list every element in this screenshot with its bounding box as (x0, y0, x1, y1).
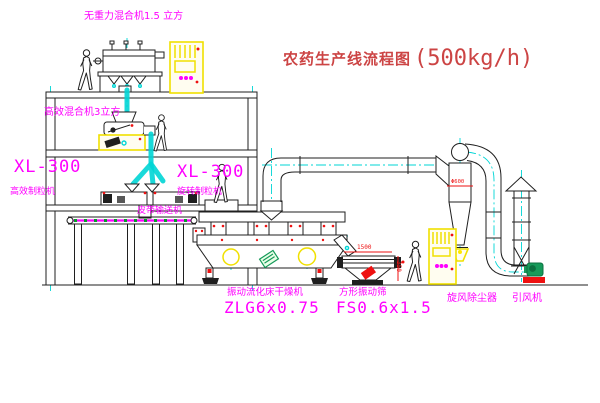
label-granulator-left-name: 高效制粒机 (10, 188, 55, 197)
label-sieve-name: 方形振动筛 (339, 288, 387, 298)
worker-figure (407, 241, 421, 281)
exhaust-stack (506, 177, 536, 274)
worker-figure (154, 115, 167, 151)
control-cabinet-2 (429, 229, 456, 284)
belt-conveyor (67, 217, 197, 284)
induced-draft-fan (523, 263, 545, 283)
gravity-free-mixer (93, 41, 164, 92)
outlet-pipe (465, 144, 530, 276)
label-dryer-model: ZLG6x0.75 (224, 300, 320, 316)
label-granulator-right-model: XL-300 (177, 164, 244, 181)
label-cyclone: 旋风除尘器 (447, 294, 497, 304)
dim-sieve-length: 1500 (357, 245, 371, 251)
dim-sieve-height: 350 (395, 261, 401, 272)
worker-figure (78, 50, 92, 90)
control-cabinet-1 (170, 42, 203, 93)
title-text: 农药生产线流程图 (283, 48, 411, 69)
cad-flow-diagram: 农药生产线流程图 (500kg/h) 无重力混合机1.5 立方 高效混合机3立方… (0, 0, 600, 403)
label-granulator-left-model: XL-300 (14, 159, 81, 176)
dim-cyclone-diameter: Φ600 (451, 180, 464, 186)
label-sieve-model: FS0.6x1.5 (336, 300, 432, 316)
drawing-title: 农药生产线流程图 (500kg/h) (283, 46, 533, 71)
label-gravity-mixer: 无重力混合机1.5 立方 (84, 12, 183, 22)
label-dryer-name: 振动流化床干燥机 (227, 288, 303, 298)
label-granulator-right-name: 旋转制粒机 (177, 188, 222, 197)
exhaust-duct (261, 156, 449, 220)
title-capacity: (500kg/h) (414, 46, 533, 71)
label-high-eff-mixer: 高效混合机3立方 (44, 108, 120, 118)
label-belt-conveyor: 皮带输送机 (137, 207, 182, 216)
label-fan: 引风机 (512, 294, 542, 304)
vibrating-sieve (334, 235, 405, 285)
